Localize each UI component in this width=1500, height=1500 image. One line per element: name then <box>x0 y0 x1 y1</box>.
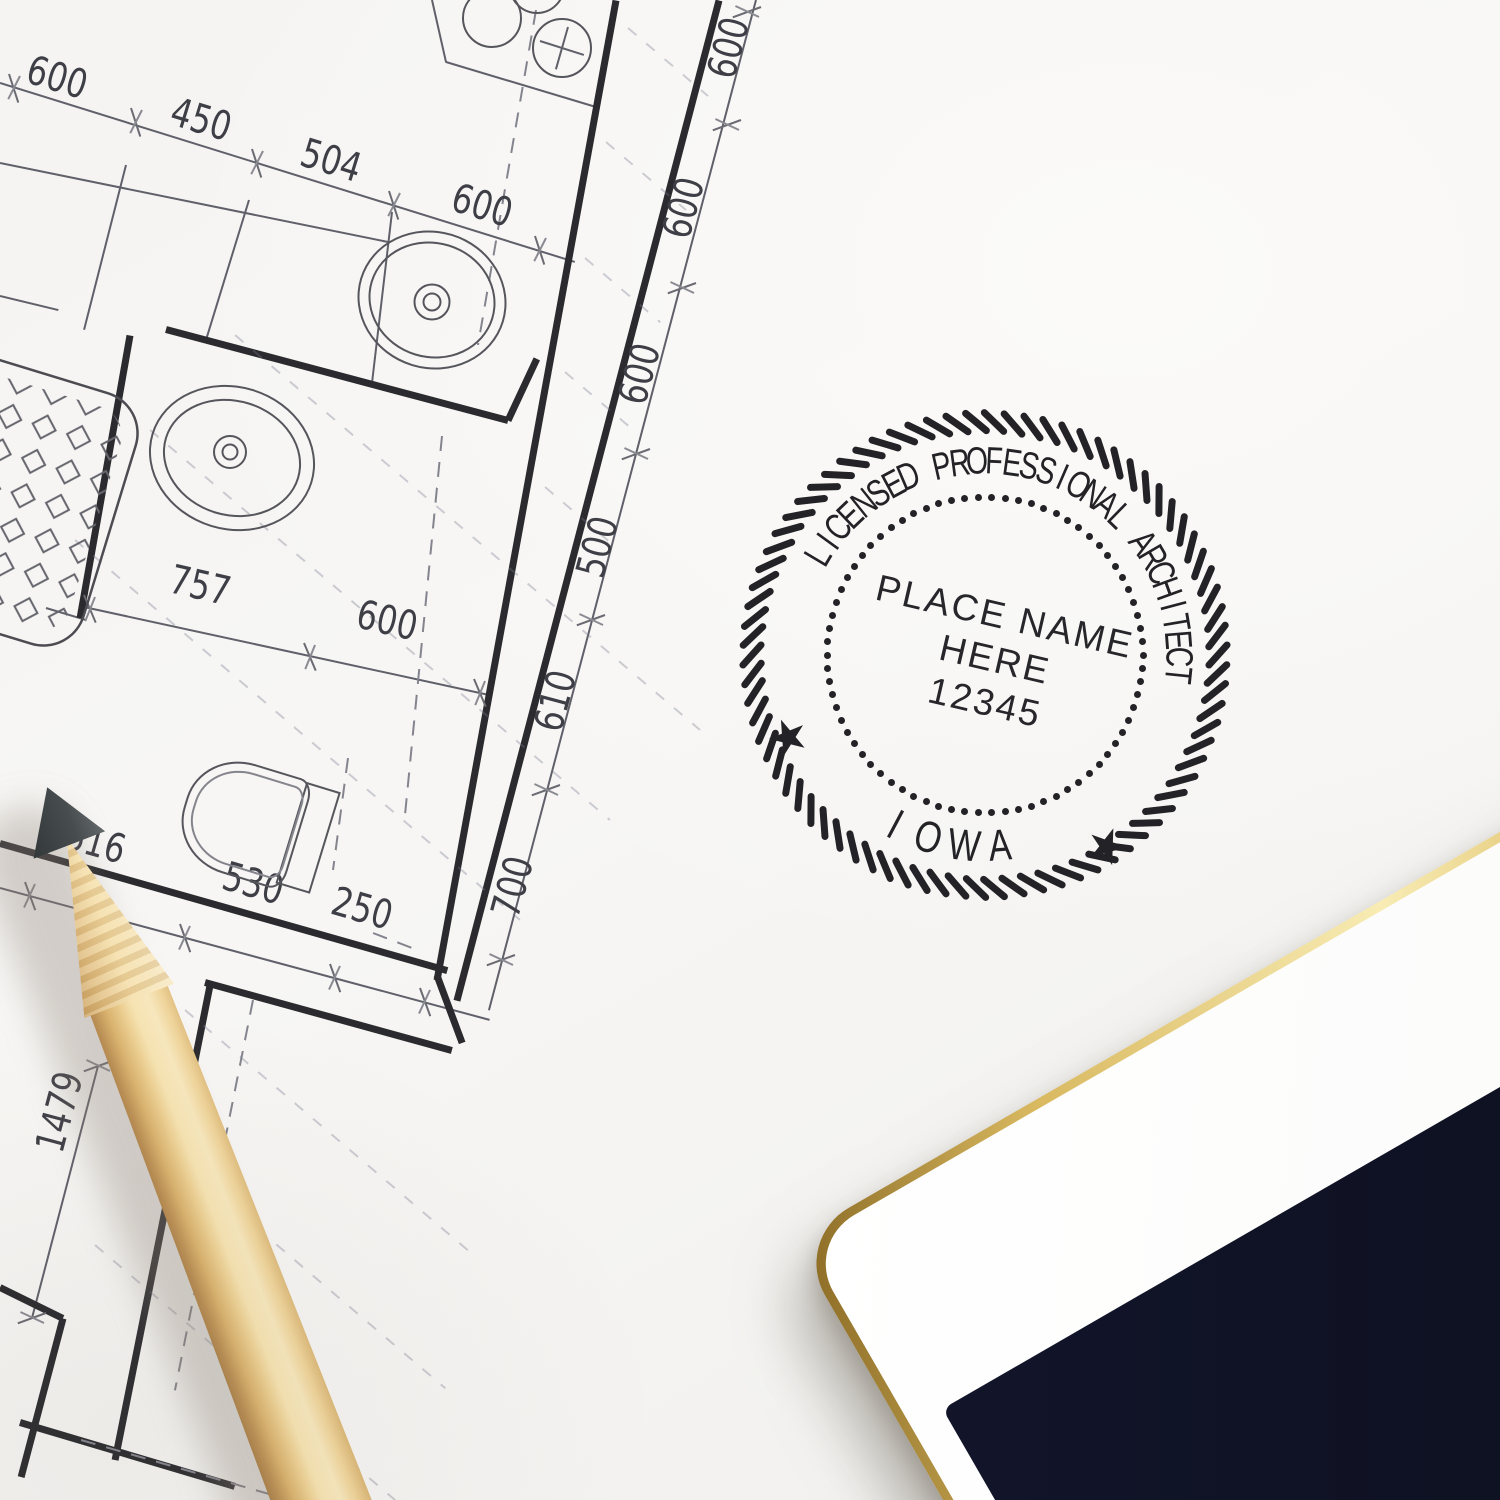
dim-label: 610 <box>526 666 586 737</box>
blueprint-thin-line <box>0 82 575 263</box>
dim-label: 600 <box>446 175 518 237</box>
dim-label: 600 <box>610 339 670 410</box>
blueprint-thin-line <box>205 200 250 341</box>
blueprint-thin-line <box>0 295 58 311</box>
blueprint-wall <box>204 979 453 1054</box>
blueprint-thin-line <box>84 606 489 696</box>
fixture-circle <box>222 444 239 461</box>
blueprint-hatch-line <box>627 27 708 97</box>
fixture-circle <box>532 18 592 78</box>
blueprint-wall <box>505 357 540 422</box>
photo-scene: 6004505046007576006165302506006006005006… <box>0 0 1500 1500</box>
dim-label: 757 <box>165 557 235 616</box>
blueprint-thin-line <box>431 0 447 62</box>
dim-label: 250 <box>326 878 397 939</box>
dim-label: 600 <box>654 173 714 244</box>
dim-label: 90 <box>0 1232 11 1283</box>
dim-label: 450 <box>165 89 237 151</box>
dim-label: 600 <box>352 592 422 651</box>
dim-label: 504 <box>295 130 367 192</box>
fixture-circle <box>462 0 522 48</box>
fixture-circle <box>423 293 442 312</box>
blueprint-thin-line <box>83 165 127 330</box>
dim-label: 500 <box>568 512 628 583</box>
dim-label: 600 <box>21 47 93 109</box>
blueprint-wall <box>18 1317 67 1478</box>
dim-label: 600 <box>699 13 759 84</box>
